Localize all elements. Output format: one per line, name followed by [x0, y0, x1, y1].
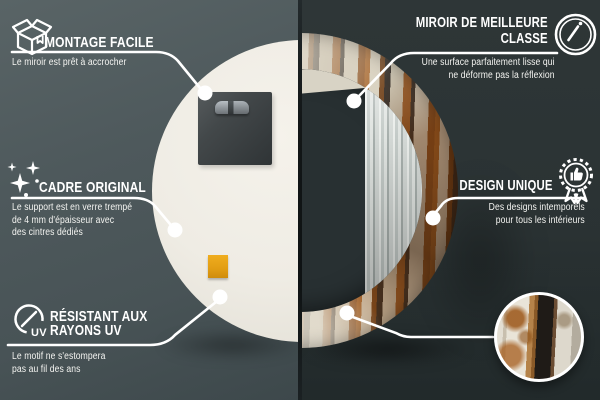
ceiling-reflection — [301, 69, 366, 94]
frame-desc: Le support est en verre trempé de 4 mm d… — [12, 202, 132, 240]
design-title: DESIGN UNIQUE — [460, 178, 553, 194]
montage-desc: Le miroir est prêt à accrocher — [12, 57, 126, 70]
uv-desc: Le motif ne s'estompera pas au fil des a… — [12, 351, 105, 376]
curtain-reflection — [365, 69, 422, 312]
product-infographic: MONTAGE FACILE Le miroir est prêt à accr… — [0, 0, 600, 400]
mirror-hanger-plate — [198, 92, 272, 165]
frame-texture-detail — [494, 292, 584, 382]
design-desc: Des designs intemporels pour tous les in… — [489, 202, 585, 227]
frame-title: CADRE ORIGINAL — [39, 180, 146, 196]
hanger-bracket — [215, 101, 249, 114]
orange-sticker — [208, 255, 228, 278]
mirror-glass — [301, 69, 422, 312]
mirror-back-circle — [152, 40, 299, 342]
uv-title: RÉSISTANT AUX RAYONS UV — [50, 310, 147, 338]
montage-title: MONTAGE FACILE — [45, 35, 154, 51]
uv-protection-icon: UV — [12, 302, 48, 344]
quality-desc: Une surface parfaitement lisse qui ne dé… — [422, 57, 555, 82]
quality-title: MIROIR DE MEILLEURE CLASSE — [416, 15, 548, 47]
uv-icon-label: UV — [31, 327, 47, 339]
mirror-back-view — [152, 40, 299, 342]
split-divider — [298, 0, 302, 400]
